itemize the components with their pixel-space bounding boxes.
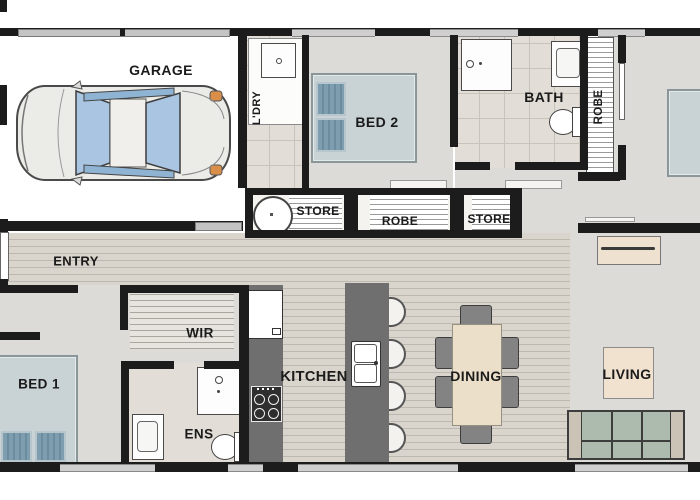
burner <box>268 394 279 405</box>
burner <box>268 408 279 419</box>
store-hwc-label: STORE <box>296 204 339 218</box>
floor-plan: GARAGE L'DRY BED 2 BATH ROBE STORE ROBE … <box>0 0 700 500</box>
sofa-arm-left <box>569 412 582 458</box>
bed1-pillow <box>1 431 32 462</box>
store-left-wall <box>245 188 253 238</box>
bed2-pillow <box>316 82 346 116</box>
living-label: LIVING <box>602 366 651 382</box>
kitchen-fridge-handle <box>272 328 281 335</box>
bath-robe-wall <box>580 35 588 170</box>
ens-top-wall-left <box>122 361 174 369</box>
ens-vanity-basin <box>137 421 158 452</box>
ens-label: ENS <box>185 427 214 442</box>
entry-bottom-wall <box>0 285 78 293</box>
bed3-bed <box>667 89 700 177</box>
bed2-bath-wall <box>450 35 458 147</box>
dining-label: DINING <box>450 368 501 384</box>
robe-master-label: ROBE <box>593 90 605 125</box>
entry-floor <box>7 233 250 285</box>
living-top-wall <box>578 223 700 233</box>
bath-bottom-wall-left <box>455 162 490 170</box>
window-living <box>575 464 688 472</box>
wir-shelving <box>130 289 234 349</box>
bath-bottom-wall-right <box>515 162 585 170</box>
bed1-label: BED 1 <box>18 377 60 392</box>
sofa-seat-divider <box>641 412 643 458</box>
store-band-bottom-wall <box>245 230 522 238</box>
sofa-back-line <box>581 440 671 442</box>
corner-tick <box>0 0 7 12</box>
window-dining-slider <box>298 464 458 472</box>
bed1-pillow <box>35 431 66 462</box>
left-wall-piece <box>0 85 7 125</box>
bed3-door-leaf <box>619 63 625 120</box>
sofa-arm-right <box>670 412 683 458</box>
robe-store2-wall <box>450 190 464 238</box>
kitchen-cooktop <box>251 386 282 422</box>
window-bed1 <box>60 464 155 472</box>
wir-left-wall <box>120 285 128 330</box>
bath-label: BATH <box>524 89 563 105</box>
garage-door-split <box>120 28 125 36</box>
bath-vanity-basin <box>556 48 580 78</box>
laundry-tap <box>276 58 282 64</box>
garage-label: GARAGE <box>129 62 193 78</box>
store2-right-wall <box>510 188 522 238</box>
dining-chair <box>500 337 519 369</box>
living-console-line <box>601 247 655 250</box>
bed2-label: BED 2 <box>355 114 398 130</box>
burner <box>254 408 265 419</box>
hwc-dot <box>270 213 273 216</box>
ens-left-wall <box>121 361 129 462</box>
burner <box>254 394 265 405</box>
bed2-pillow <box>316 118 346 152</box>
wir-top-wall <box>120 285 248 293</box>
bath-shower-head <box>466 60 474 68</box>
laundry-label: L'DRY <box>251 91 263 125</box>
bed3-left-wall-top <box>618 35 626 63</box>
bath-shower-dot <box>479 62 482 65</box>
laundry-bed2-wall <box>302 35 309 188</box>
entry-label: ENTRY <box>53 254 99 269</box>
front-door-leaf <box>0 232 9 281</box>
living-console <box>597 236 661 265</box>
dining-chair <box>500 376 519 408</box>
garage-laundry-wall <box>238 35 247 188</box>
bed3-left-wall-bottom <box>618 145 626 180</box>
island-sink-tap <box>374 361 378 365</box>
car-top-view <box>14 79 234 187</box>
kitchen-label: KITCHEN <box>280 369 347 385</box>
wir-label: WIR <box>186 326 213 341</box>
store-hall-label: STORE <box>467 212 510 226</box>
robe-bottom-wall <box>578 172 620 181</box>
kitchen-dining-floor <box>250 233 570 462</box>
window-ens <box>228 464 263 472</box>
bed1-top-wall <box>0 332 40 340</box>
living-console-shelf <box>585 217 635 222</box>
sofa-seat-divider <box>611 412 613 458</box>
ens-shower-dot <box>217 390 220 393</box>
ens-shower-head <box>215 376 223 384</box>
island-sink-basin-top <box>354 344 377 363</box>
robe-hall-label: ROBE <box>382 214 418 228</box>
kitchen-cooktop-knobs <box>257 388 277 390</box>
store-band-top-wall <box>245 188 522 195</box>
sofa <box>567 410 685 460</box>
garage-internal-door <box>195 222 242 231</box>
store-robe-wall <box>344 190 358 238</box>
window-top-bath <box>430 29 518 37</box>
wir-kitchen-wall <box>239 285 249 462</box>
island-sink-basin-bottom <box>354 364 377 383</box>
